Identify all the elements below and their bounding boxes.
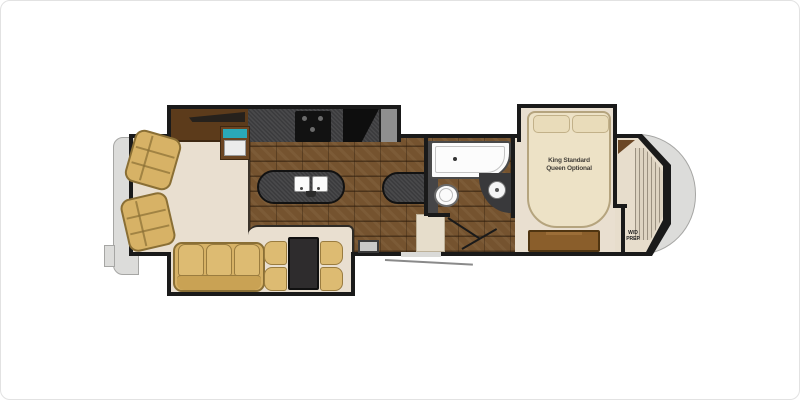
entry-landing [416, 214, 445, 252]
pillow [572, 115, 609, 133]
recliner-seam [126, 209, 165, 220]
fireplace-screen [223, 129, 247, 138]
peninsula-counter [382, 172, 428, 204]
sofa-cushion [234, 244, 260, 276]
sofa-cushion [206, 244, 232, 276]
pantry-cabinet [379, 109, 397, 142]
bed-label-line1: King Standard [532, 157, 606, 165]
burner-icon [310, 127, 315, 132]
sink-bowl-icon [312, 176, 328, 192]
wd-prep-label-line2: PREP [617, 236, 649, 242]
dinette-table [288, 237, 319, 290]
recliner-seam [135, 201, 147, 246]
dinette-chair [264, 267, 287, 291]
burner-icon [318, 116, 323, 121]
floorplan-canvas: King Standard Queen Optional W/D PREP [0, 0, 800, 400]
bathroom-door-stub [428, 213, 450, 217]
bedroom-closet-wall-upper [613, 138, 617, 208]
entry-step [358, 240, 379, 253]
bathroom-right-wall [511, 138, 515, 218]
toilet-seat-line [439, 188, 453, 202]
tub-drain-icon [453, 157, 457, 161]
sink-divider [306, 191, 316, 197]
dresser-handle-line [546, 232, 582, 235]
recliner-seam [130, 224, 169, 235]
entry-door-opening [401, 252, 441, 257]
sofa-cushion [178, 244, 204, 276]
vanity-drain-icon [495, 188, 499, 192]
sofa-seat-front [177, 275, 261, 290]
fireplace-insert [224, 140, 246, 156]
dinette-chair [320, 241, 343, 265]
burner-icon [302, 116, 307, 121]
recliner-seam [139, 136, 154, 181]
entry-door-swing [385, 259, 473, 265]
faucet-icon [300, 187, 303, 190]
tub-inner-line [435, 146, 505, 173]
pillow [533, 115, 570, 133]
dinette-chair [264, 241, 287, 265]
recliner-seam [131, 161, 170, 174]
recliner-seam [136, 146, 175, 159]
faucet-icon [317, 187, 320, 190]
rear-ladder [104, 245, 115, 267]
bed-label-line2: Queen Optional [532, 165, 606, 173]
dinette-chair [320, 267, 343, 291]
